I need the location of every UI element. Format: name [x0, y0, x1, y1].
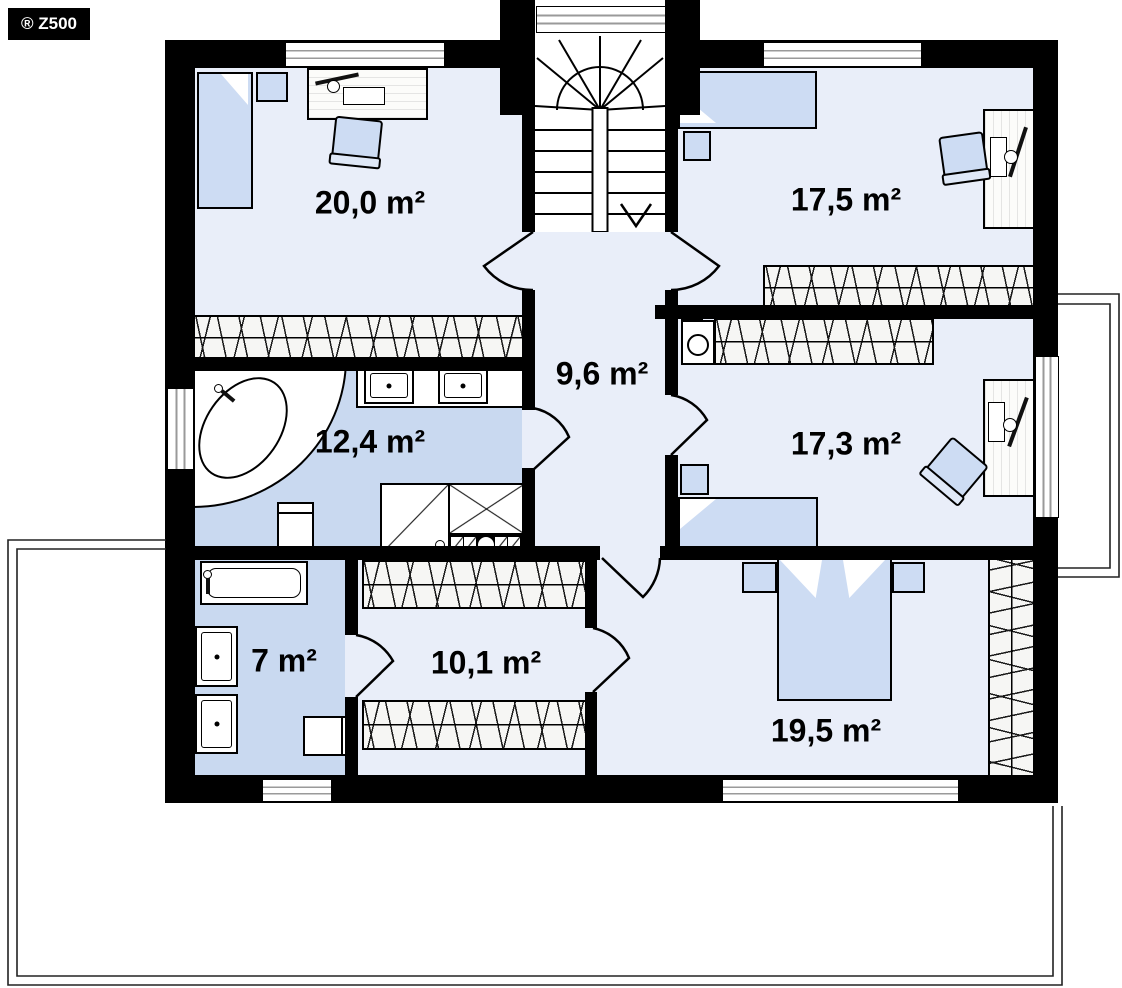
window	[167, 388, 194, 470]
sink	[364, 367, 414, 404]
floor-plan: 20,0 m² 17,5 m² 9,6 m² 12,4 m² 17,3 m² 7…	[0, 0, 1122, 988]
chair	[938, 131, 989, 181]
room-area-label: 10,1 m²	[431, 645, 541, 682]
desk-lamp-icon	[1004, 150, 1018, 164]
staircase	[535, 6, 665, 232]
window	[536, 6, 666, 33]
room-area-label: 7 m²	[251, 643, 317, 680]
bath-tap-icon	[206, 578, 210, 594]
room-area-label: 17,3 m²	[791, 426, 901, 463]
wall-segment	[665, 0, 678, 232]
wardrobe	[763, 265, 1037, 310]
wall-segment	[522, 0, 535, 232]
nightstand	[256, 72, 288, 102]
brand-logo: ® Z500	[8, 8, 90, 40]
nightstand	[892, 562, 925, 593]
window	[285, 42, 445, 67]
window	[262, 779, 332, 802]
washing-machine-icon	[681, 320, 715, 365]
room-area-label: 19,5 m²	[771, 713, 881, 750]
room-area-label: 12,4 m²	[315, 424, 425, 461]
nightstand	[683, 131, 711, 161]
window	[1035, 356, 1059, 518]
shower-enclosure	[448, 483, 525, 535]
bathtub	[200, 561, 308, 605]
wall-segment	[165, 546, 600, 560]
wall-segment	[665, 455, 678, 560]
sink	[195, 626, 238, 687]
wall-segment	[345, 697, 358, 777]
toilet	[277, 502, 314, 550]
balcony-outline	[1058, 294, 1119, 577]
window	[722, 779, 959, 802]
window	[763, 42, 922, 67]
sink	[195, 694, 238, 754]
wardrobe	[362, 700, 589, 750]
desk-lamp-icon	[1003, 418, 1017, 432]
wall-segment	[655, 305, 1058, 319]
desk-lamp-icon	[327, 80, 340, 93]
balcony-outline	[1058, 304, 1110, 568]
wall-segment	[660, 546, 1058, 560]
shower	[380, 483, 450, 555]
double-bed	[777, 558, 892, 701]
wall-segment	[522, 290, 535, 410]
wall-segment	[345, 560, 358, 635]
wall-segment	[585, 692, 597, 777]
room-area-label: 9,6 m²	[556, 356, 648, 393]
wall-segment	[681, 315, 703, 322]
room-area-label: 17,5 m²	[791, 182, 901, 219]
nightstand	[680, 464, 709, 495]
nightstand	[742, 562, 777, 593]
wardrobe	[714, 318, 934, 365]
wall-segment	[585, 560, 597, 628]
wardrobe	[362, 560, 589, 609]
sink	[438, 367, 488, 404]
wardrobe	[193, 315, 526, 361]
keyboard-icon	[343, 87, 385, 105]
wardrobe	[988, 558, 1036, 779]
room-area-label: 20,0 m²	[315, 185, 425, 222]
wall-segment	[165, 357, 535, 371]
chair	[331, 116, 383, 165]
